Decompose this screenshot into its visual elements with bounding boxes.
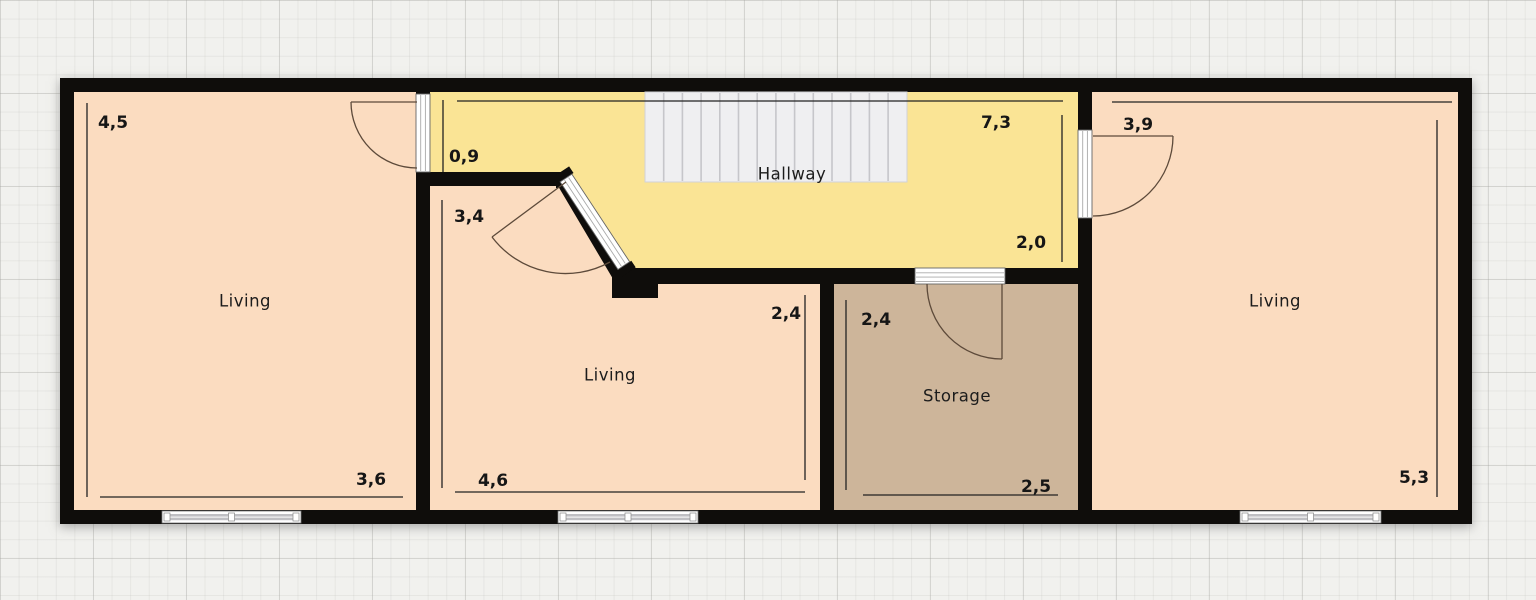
wall-hallway-bottom-segment <box>612 268 1092 284</box>
room-label-hallway: Hallway <box>758 165 827 184</box>
dim-hallway-width: 7,3 <box>981 113 1011 133</box>
window-living-right <box>1240 511 1381 523</box>
wall-hallway-left-segment <box>416 172 572 186</box>
dim-living-left-height: 4,5 <box>98 113 128 133</box>
dim-hallway-height-right: 2,0 <box>1016 233 1046 253</box>
room-label-storage: Storage <box>923 387 991 406</box>
dim-hallway-height-left: 0,9 <box>449 147 479 167</box>
wall-middle-storage-divider <box>820 268 834 510</box>
dim-storage-height: 2,4 <box>861 310 891 330</box>
door-left-living-hallway[interactable] <box>416 94 430 172</box>
door-hallway-storage[interactable] <box>915 268 1005 284</box>
dim-living-middle-height-right: 2,4 <box>771 304 801 324</box>
dim-storage-width: 2,5 <box>1021 477 1051 497</box>
dim-living-middle-height-left: 3,4 <box>454 207 484 227</box>
dim-living-right-height: 5,3 <box>1399 468 1429 488</box>
window-living-middle <box>558 511 698 523</box>
room-label-living-left: Living <box>219 292 271 311</box>
room-label-living-right: Living <box>1249 292 1301 311</box>
window-living-left <box>162 511 301 523</box>
room-label-living-middle: Living <box>584 366 636 385</box>
dim-living-right-width: 3,9 <box>1123 115 1153 135</box>
dim-living-left-width: 3,6 <box>356 470 386 490</box>
door-hallway-right-living[interactable] <box>1078 130 1092 218</box>
dim-living-middle-width: 4,6 <box>478 471 508 491</box>
floor-plan: Living Living Hallway Storage Living 4,5… <box>0 0 1536 600</box>
